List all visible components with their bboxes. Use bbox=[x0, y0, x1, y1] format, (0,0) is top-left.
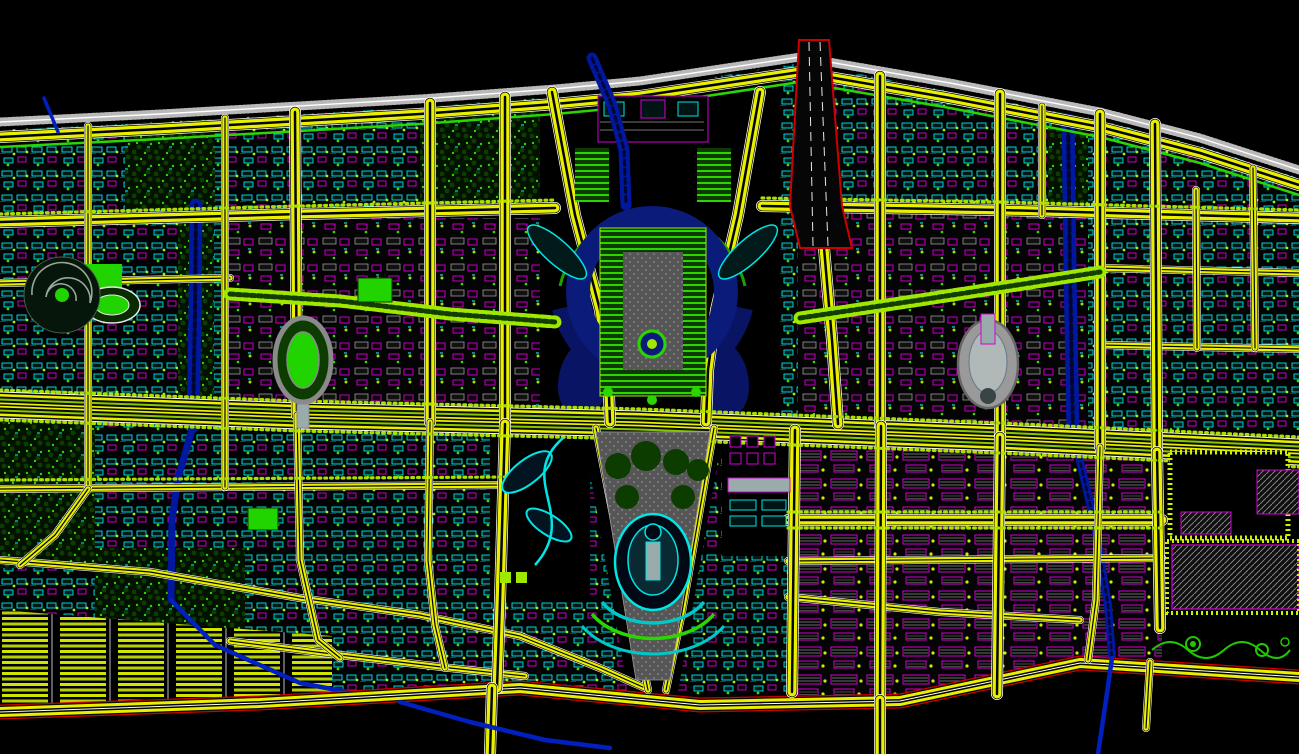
master-plan-drawing bbox=[0, 0, 1299, 754]
cad-viewport[interactable] bbox=[0, 0, 1299, 754]
